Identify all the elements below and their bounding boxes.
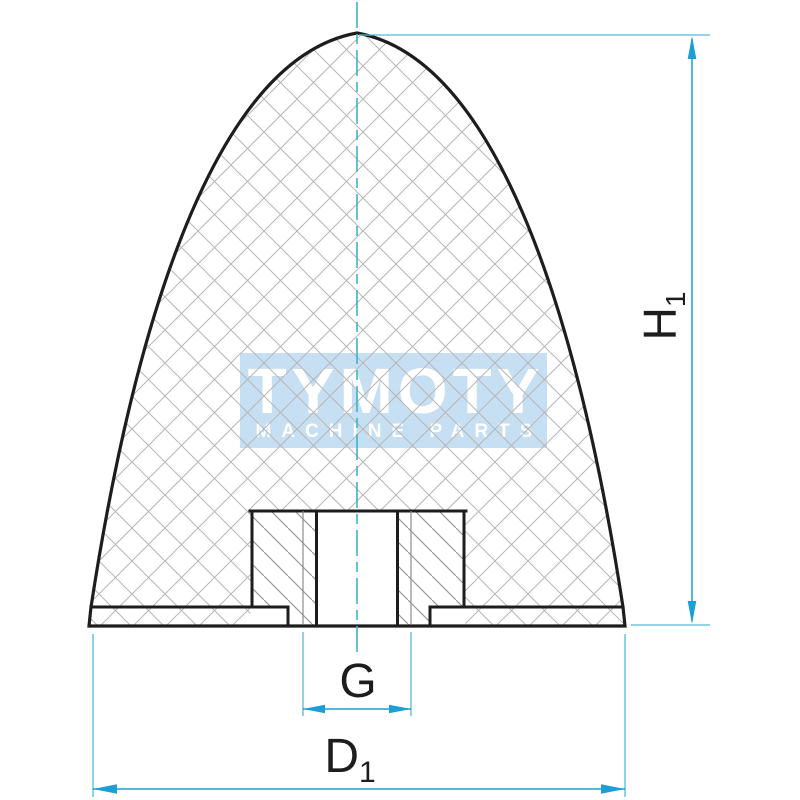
buffer-section-drawing: TYMOTY MACHINE PARTS H1 xyxy=(0,0,800,800)
g-label: G xyxy=(339,655,376,708)
technical-drawing-page: TYMOTY MACHINE PARTS H1 xyxy=(0,0,800,800)
